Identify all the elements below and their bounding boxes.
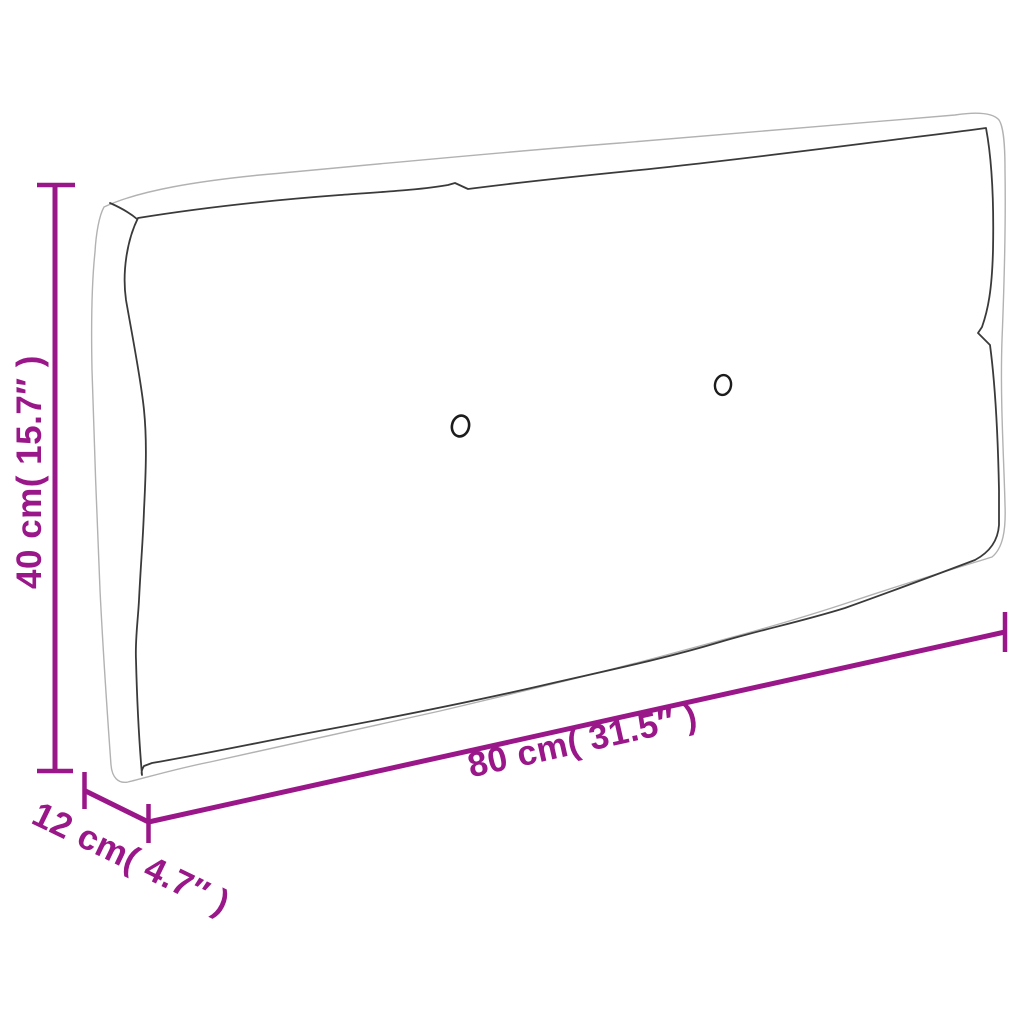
cushion-button	[713, 374, 732, 396]
cushion-corner-seam	[110, 203, 137, 219]
width-dimension-label: 80 cm( 31.5″ )	[464, 696, 701, 785]
cushion-button	[450, 414, 472, 438]
width-dimension: 80 cm( 31.5″ )	[149, 612, 1006, 843]
height-dimension-label: 40 cm( 15.7″ )	[10, 355, 49, 589]
product-image-canvas: 40 cm( 15.7″ ) 12 cm( 4.7″ ) 80 cm( 31.5…	[0, 0, 1024, 1024]
depth-dimension: 12 cm( 4.7″ )	[26, 772, 236, 923]
cushion-outer-outline	[92, 113, 1006, 782]
depth-dimension-line	[85, 791, 149, 823]
product-dimension-diagram: 40 cm( 15.7″ ) 12 cm( 4.7″ ) 80 cm( 31.5…	[0, 0, 1024, 1024]
cushion-seam-outline	[125, 128, 999, 775]
cushion-illustration	[92, 113, 1006, 782]
height-dimension: 40 cm( 15.7″ )	[10, 185, 75, 771]
